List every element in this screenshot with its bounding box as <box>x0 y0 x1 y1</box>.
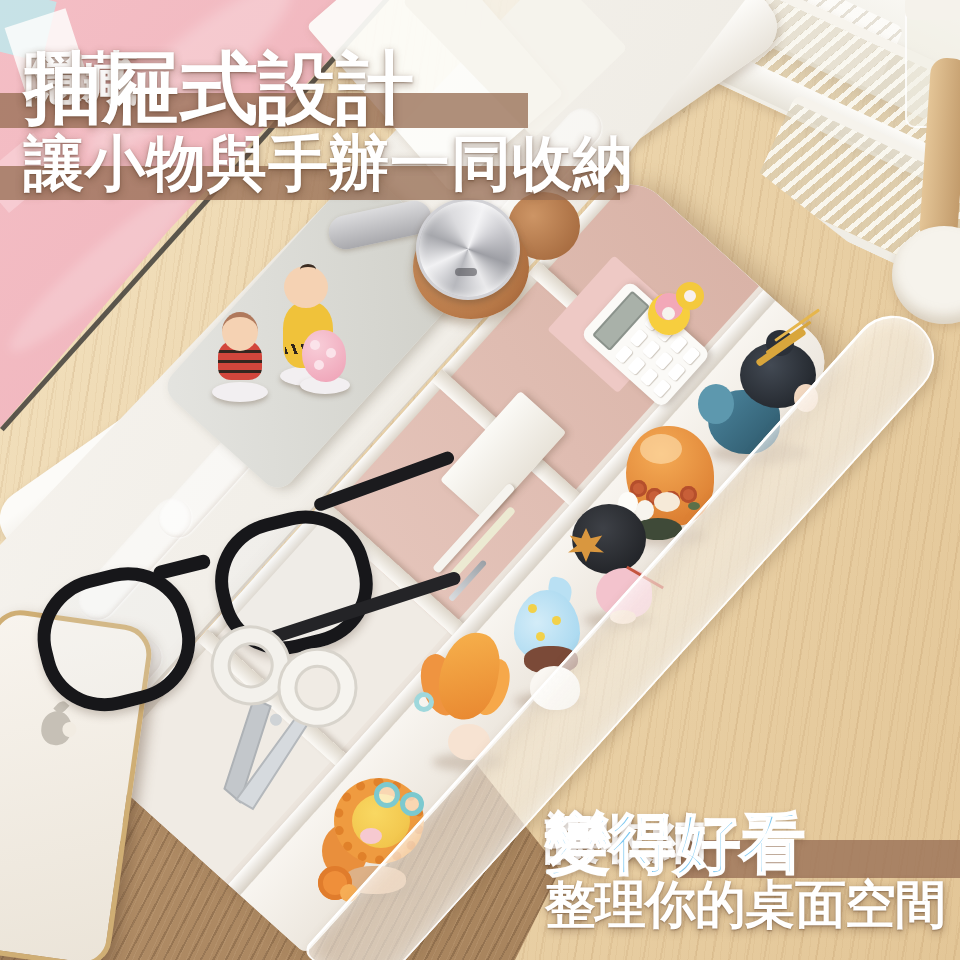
eyeglasses-bridge <box>152 553 212 581</box>
pink-flower-figurine <box>302 330 346 382</box>
tagline-line2: 整理你的桌面空間 <box>545 880 945 931</box>
tagline-emphasis: 變得好看 <box>545 812 805 877</box>
eyeglasses-lens <box>24 553 209 725</box>
eyeglasses-temple <box>312 450 456 513</box>
headphone-shadow-detail <box>455 268 477 276</box>
goggles <box>374 782 400 808</box>
linus-figurine-head <box>222 312 258 351</box>
charlie-hair-curl <box>300 264 316 275</box>
figurine-base <box>212 382 268 402</box>
product-photo-stage: 隱藏抽屜式設計 讓小物與手辦一同收納 讓收納變得好看 整理你的桌面空間 <box>0 0 960 960</box>
headphone-metal-disc <box>416 198 520 300</box>
goggles <box>400 792 424 816</box>
washi-tape-roll <box>676 282 704 310</box>
headline-emphasis: 抽屜式設計 <box>24 50 414 128</box>
headline-line2: 讓小物與手辦一同收納 <box>24 134 634 194</box>
